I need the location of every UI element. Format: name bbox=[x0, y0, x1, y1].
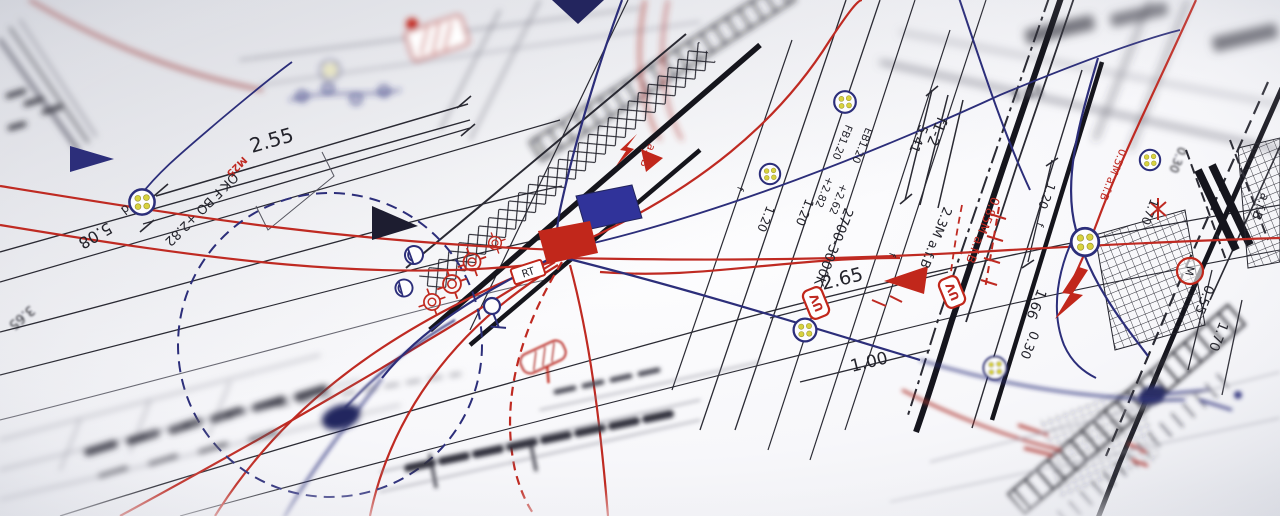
blueprint-photo: M UV UV RT 2.55 M25 OK F BO +2.82 d 5.08… bbox=[0, 0, 1280, 516]
vignette bbox=[0, 0, 1280, 516]
plan-drawing: M UV UV RT 2.55 M25 OK F BO +2.82 d 5.08… bbox=[0, 0, 1280, 516]
